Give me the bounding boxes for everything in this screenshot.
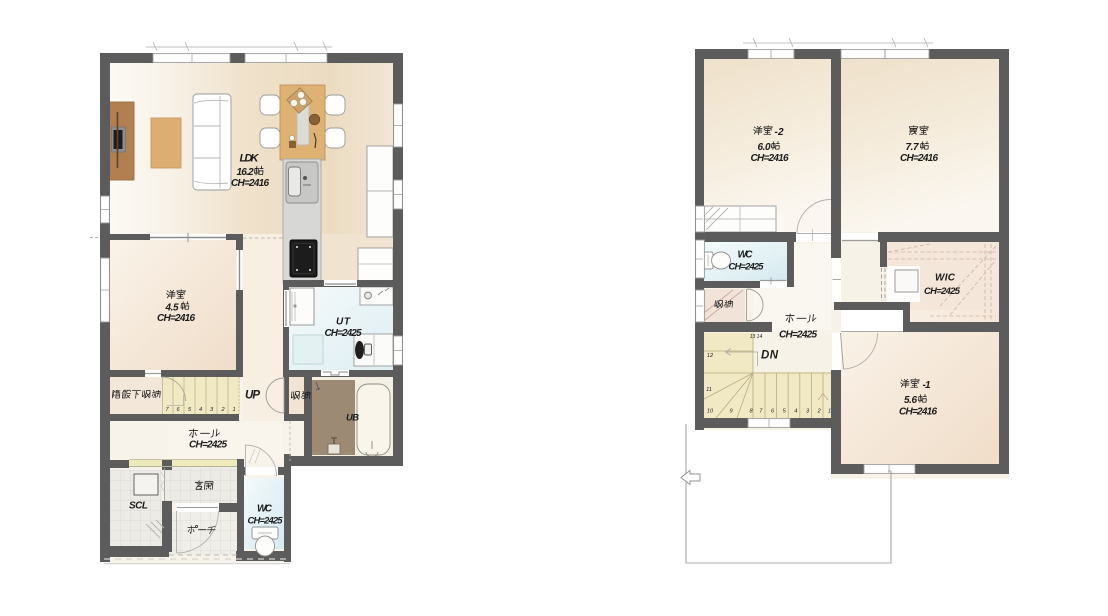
svg-text:LDK: LDK bbox=[240, 153, 260, 165]
svg-text:6.0: 6.0 bbox=[758, 142, 771, 153]
svg-text:7.7: 7.7 bbox=[906, 142, 919, 153]
svg-text:CH=2425: CH=2425 bbox=[248, 515, 284, 526]
svg-text:16.2: 16.2 bbox=[237, 167, 254, 178]
svg-text:CH=2425: CH=2425 bbox=[729, 261, 765, 272]
svg-text:CH=2416: CH=2416 bbox=[751, 153, 789, 164]
svg-text:5.6: 5.6 bbox=[904, 395, 917, 406]
svg-text:SCL: SCL bbox=[129, 501, 148, 512]
svg-text:9: 9 bbox=[729, 409, 732, 415]
svg-text:4: 4 bbox=[794, 409, 797, 415]
svg-text:1: 1 bbox=[828, 409, 831, 415]
svg-text:CH=2425: CH=2425 bbox=[189, 440, 227, 451]
svg-text:WIC: WIC bbox=[935, 273, 956, 284]
svg-text:CH=2425: CH=2425 bbox=[325, 328, 362, 339]
svg-text:CH=2416: CH=2416 bbox=[157, 313, 195, 324]
svg-text:-2: -2 bbox=[775, 127, 784, 138]
svg-text:WC: WC bbox=[738, 250, 754, 261]
svg-text:4.5: 4.5 bbox=[165, 302, 179, 313]
svg-text:12: 12 bbox=[707, 353, 714, 359]
svg-text:CH=2425: CH=2425 bbox=[924, 285, 961, 296]
svg-text:10: 10 bbox=[707, 409, 714, 415]
svg-text:1: 1 bbox=[232, 407, 235, 413]
svg-text:UP: UP bbox=[245, 390, 260, 402]
svg-text:DN: DN bbox=[761, 350, 779, 362]
svg-text:-1: -1 bbox=[923, 380, 931, 391]
svg-text:WC: WC bbox=[257, 504, 273, 515]
svg-text:11: 11 bbox=[706, 387, 712, 393]
svg-text:CH=2416: CH=2416 bbox=[231, 178, 269, 189]
svg-text:UT: UT bbox=[336, 317, 351, 328]
svg-text:13 14: 13 14 bbox=[750, 334, 763, 340]
svg-text:4: 4 bbox=[199, 407, 202, 413]
svg-text:CH=2425: CH=2425 bbox=[779, 330, 817, 341]
svg-text:CH=2416: CH=2416 bbox=[900, 153, 938, 164]
svg-text:CH=2416: CH=2416 bbox=[899, 407, 937, 418]
svg-text:UB: UB bbox=[346, 412, 359, 423]
